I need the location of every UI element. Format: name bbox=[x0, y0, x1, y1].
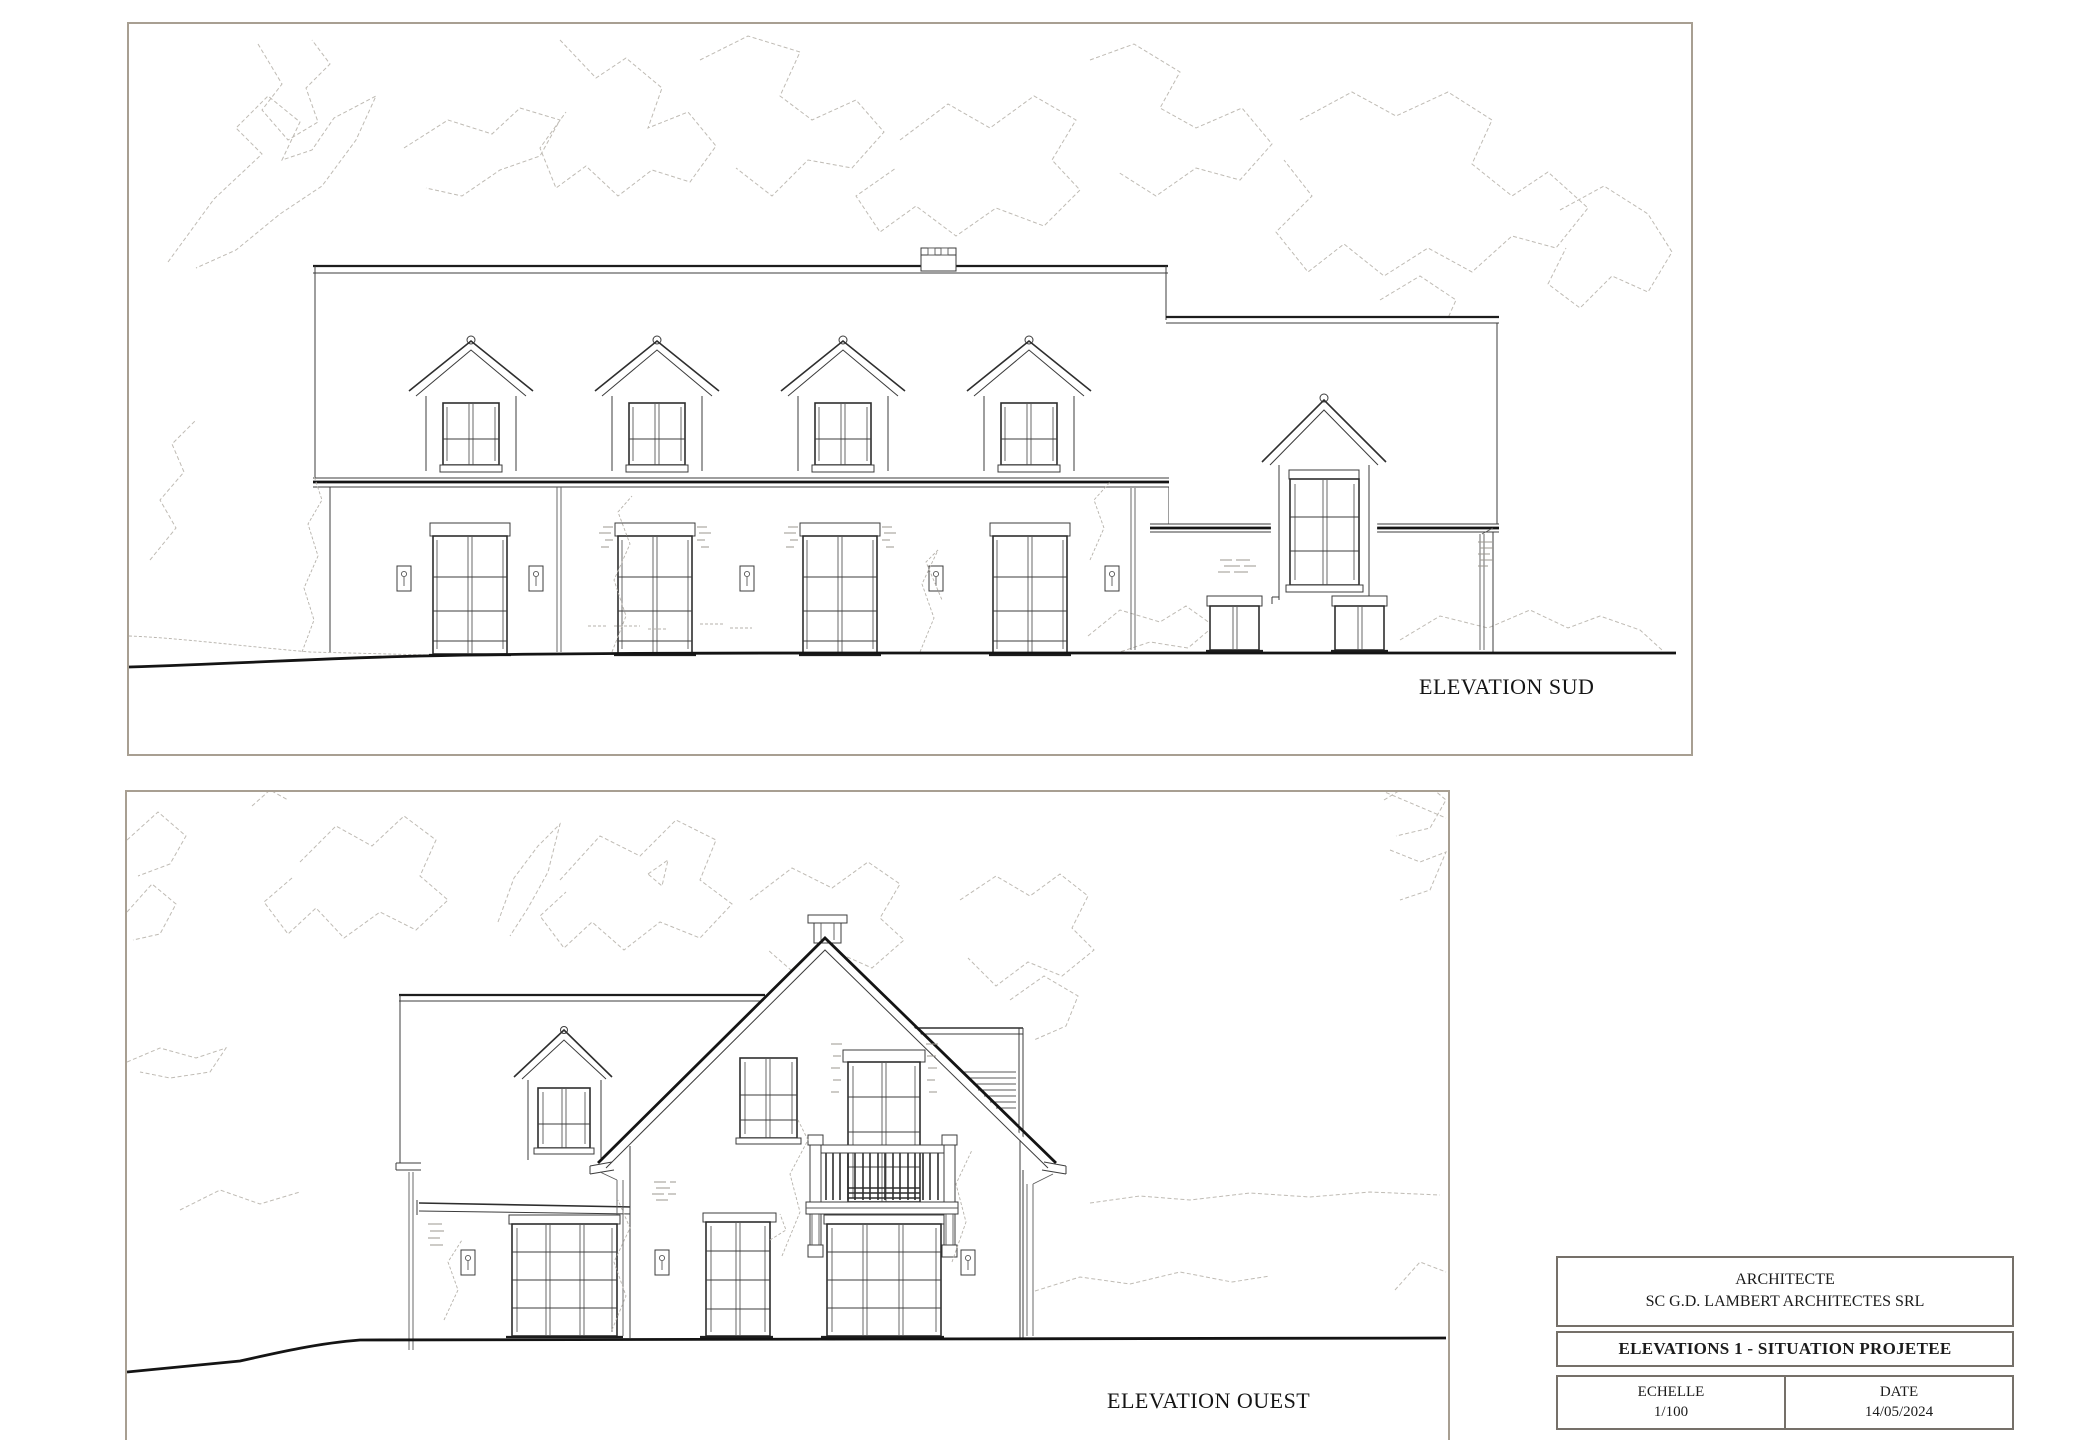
ground-door-middle bbox=[700, 1213, 776, 1337]
architectural-sheet: ELEVATION SUD ELEVATION OUEST ARCHITECTE… bbox=[0, 0, 2094, 1440]
chimney bbox=[921, 248, 956, 271]
main-house-south bbox=[313, 248, 1180, 655]
date-cell: DATE 14/05/2024 bbox=[1786, 1377, 2012, 1428]
titleblock-architect-box: ARCHITECTE SC G.D. LAMBERT ARCHITECTES S… bbox=[1556, 1256, 2014, 1327]
architect-name: SC G.D. LAMBERT ARCHITECTES SRL bbox=[1558, 1291, 2012, 1313]
downspout bbox=[1480, 528, 1493, 650]
french-door-4 bbox=[989, 523, 1071, 655]
ground-line bbox=[127, 1338, 1446, 1372]
scale-label: ECHELLE bbox=[1558, 1384, 1784, 1401]
architect-label: ARCHITECTE bbox=[1558, 1269, 2012, 1291]
french-door-2 bbox=[599, 523, 711, 655]
french-door-3 bbox=[784, 523, 896, 655]
south-elevation-panel bbox=[127, 22, 1693, 756]
south-elevation-label: ELEVATION SUD bbox=[1419, 674, 1594, 700]
french-door-1 bbox=[429, 523, 511, 655]
scale-cell: ECHELLE 1/100 bbox=[1558, 1377, 1786, 1428]
date-label: DATE bbox=[1786, 1384, 2012, 1401]
main-gutter bbox=[313, 478, 1180, 487]
wall-lamp bbox=[655, 1250, 669, 1275]
ground-door-left bbox=[506, 1215, 623, 1337]
upper-window bbox=[736, 1058, 801, 1144]
west-elevation-panel bbox=[125, 790, 1450, 1440]
sheet-title: ELEVATIONS 1 - SITUATION PROJETEE bbox=[1619, 1339, 1952, 1359]
ground-line bbox=[129, 653, 1676, 667]
terrain-sketch-line bbox=[129, 636, 430, 655]
scale-value: 1/100 bbox=[1558, 1404, 1784, 1421]
small-window-1 bbox=[1206, 596, 1263, 651]
west-elevation-drawing bbox=[127, 792, 1448, 1440]
date-value: 14/05/2024 bbox=[1786, 1404, 2012, 1421]
wall-lamp bbox=[1105, 566, 1119, 591]
wall-lamp bbox=[397, 566, 411, 591]
wall-lamp bbox=[461, 1250, 475, 1275]
climbing-plants-south bbox=[302, 476, 1110, 652]
downspout bbox=[1027, 1174, 1053, 1336]
titleblock-sheet-title-box: ELEVATIONS 1 - SITUATION PROJETEE bbox=[1556, 1331, 2014, 1367]
right-wing-south bbox=[1131, 317, 1499, 652]
wall-lamp bbox=[529, 566, 543, 591]
wall-lamp bbox=[961, 1250, 975, 1275]
small-window-2 bbox=[1331, 596, 1388, 651]
titleblock-meta-box: ECHELLE 1/100 DATE 14/05/2024 bbox=[1556, 1375, 2014, 1430]
west-elevation-label: ELEVATION OUEST bbox=[1107, 1388, 1310, 1414]
wall-lamp bbox=[929, 566, 943, 591]
ground-door-right bbox=[821, 1215, 944, 1337]
wall-joint-line bbox=[557, 487, 561, 652]
wall-lamp bbox=[740, 566, 754, 591]
downspout bbox=[1131, 488, 1135, 650]
south-elevation-drawing bbox=[129, 24, 1691, 754]
